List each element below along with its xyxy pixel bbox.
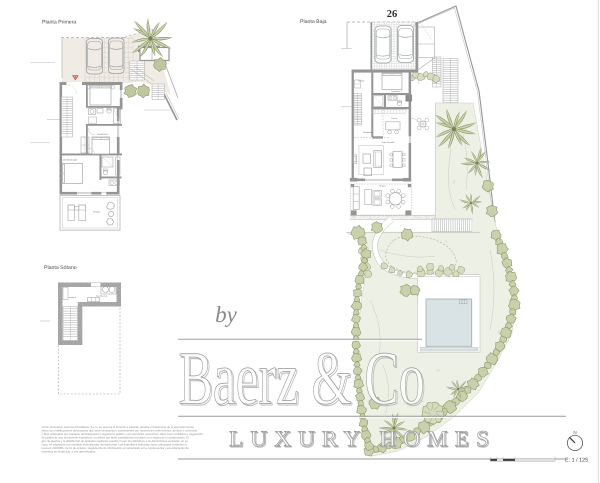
svg-text:Dormitorio 3: Dormitorio 3 bbox=[392, 90, 402, 93]
svg-text:Distribuidor: Distribuidor bbox=[363, 131, 373, 134]
svg-text:Salón Comedor: Salón Comedor bbox=[382, 141, 396, 144]
svg-text:N: N bbox=[573, 430, 576, 435]
svg-text:Dormitorio 2: Dormitorio 2 bbox=[97, 133, 109, 136]
svg-text:Planta Baja: Planta Baja bbox=[300, 19, 327, 25]
svg-text:Dormitorio ppal: Dormitorio ppal bbox=[63, 159, 78, 162]
svg-text:E: 1 / 125: E: 1 / 125 bbox=[565, 458, 588, 464]
svg-text:viviendas en Andalucía, y son: viviendas en Andalucía, y son aproximada… bbox=[42, 449, 97, 453]
svg-text:by: by bbox=[215, 302, 238, 327]
svg-text:Planta Primera: Planta Primera bbox=[42, 20, 76, 26]
svg-text:Terraza: Terraza bbox=[93, 210, 101, 213]
svg-text:Pérgola: Pérgola bbox=[379, 185, 386, 188]
svg-text:Cocina: Cocina bbox=[391, 117, 398, 120]
svg-text:Baerz & Co: Baerz & Co bbox=[179, 337, 425, 421]
svg-text:Lavadero: Lavadero bbox=[68, 296, 76, 299]
svg-text:26: 26 bbox=[387, 9, 398, 20]
svg-text:LUXURY HOMES: LUXURY HOMES bbox=[229, 426, 496, 451]
svg-text:Sala Máquinas: Sala Máquinas bbox=[96, 295, 107, 298]
svg-text:Vestidor: Vestidor bbox=[358, 80, 365, 83]
svg-text:Planta Sótano: Planta Sótano bbox=[44, 265, 77, 271]
